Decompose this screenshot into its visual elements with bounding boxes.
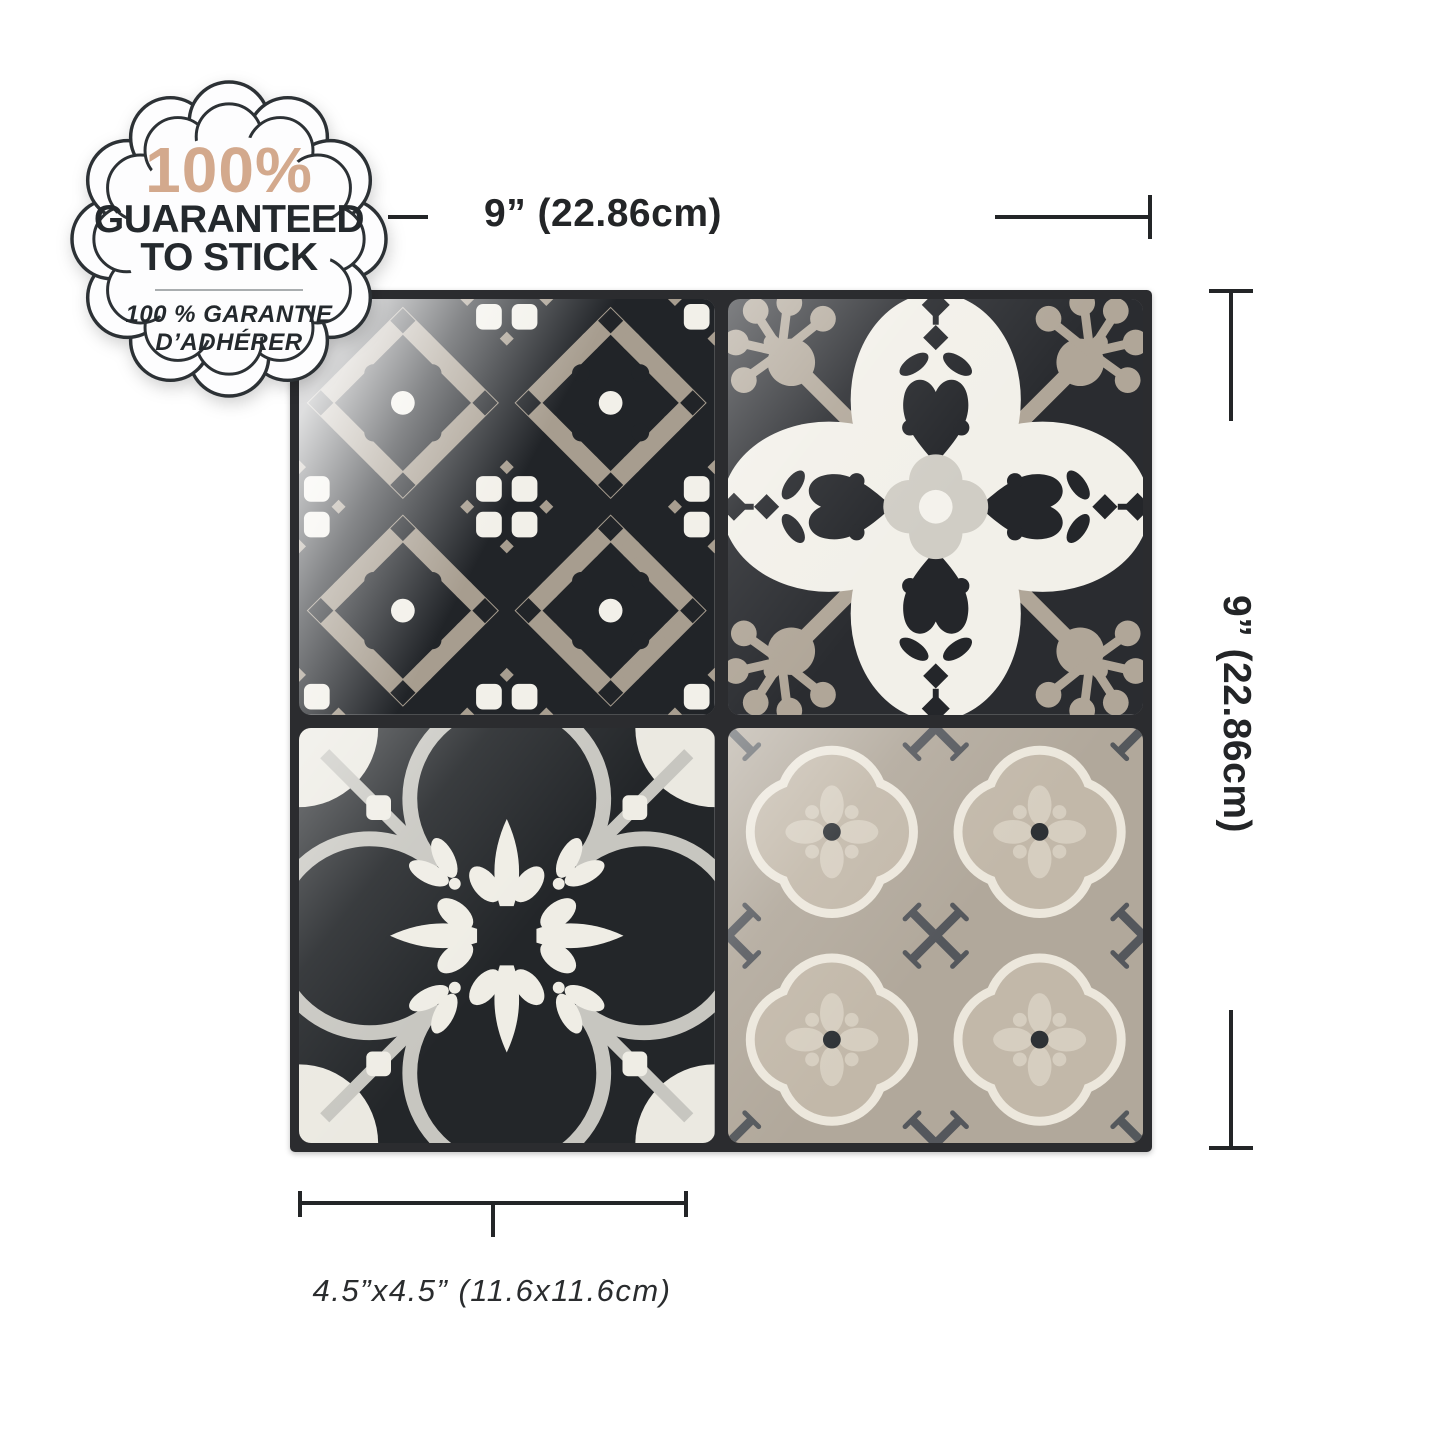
dim-right-cap-bottom	[1209, 1146, 1253, 1150]
badge-title-line2: TO STICK	[94, 239, 364, 277]
dim-bottom-label: 4.5”x4.5” (11.6x11.6cm)	[313, 1273, 672, 1309]
dim-bottom-tick-center	[491, 1203, 495, 1237]
dim-top-tick-right	[1148, 195, 1152, 239]
dim-top-line-left	[388, 215, 428, 219]
badge-subtitle-line2: D’ADHÉRER	[125, 329, 332, 357]
tile-panel	[290, 290, 1152, 1152]
badge-subtitle-line1: 100 % GARANTIE	[125, 301, 332, 329]
tile-rosette-grid	[728, 728, 1144, 1144]
dim-bottom-tick-left	[298, 1191, 302, 1217]
dim-right-line-bottom	[1229, 1010, 1233, 1150]
product-diagram: 100% GUARANTEED TO STICK 100 % GARANTIE …	[0, 0, 1445, 1445]
dim-right-label: 9” (22.86cm)	[1214, 595, 1258, 833]
badge-title-line1: GUARANTEED	[94, 201, 364, 239]
dim-bottom-tick-right	[684, 1191, 688, 1217]
guarantee-badge: 100% GUARANTEED TO STICK 100 % GARANTIE …	[70, 80, 388, 398]
quatrefoil-medallion-pattern	[299, 728, 715, 1144]
rosette-grid-pattern	[728, 728, 1144, 1144]
tile-petal-flower	[728, 299, 1144, 715]
badge-headline: 100%	[145, 140, 313, 201]
tile-quatrefoil-medallion	[299, 728, 715, 1144]
dim-right-line-top	[1229, 289, 1233, 421]
badge-divider	[155, 289, 303, 291]
petal-flower-pattern	[728, 299, 1144, 715]
dim-top-label: 9” (22.86cm)	[484, 192, 722, 236]
dim-top-line-right	[995, 215, 1151, 219]
